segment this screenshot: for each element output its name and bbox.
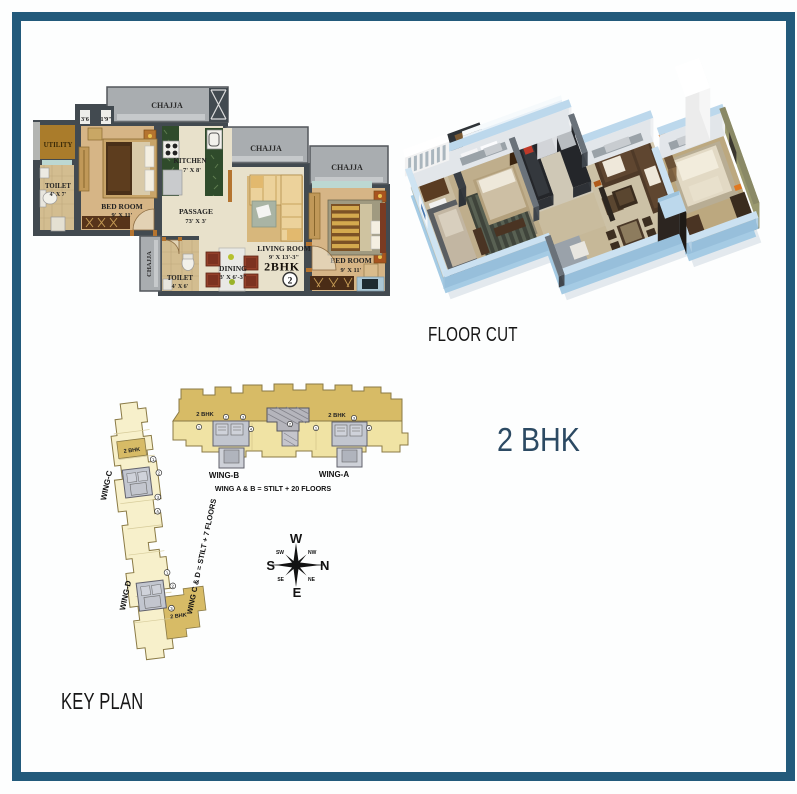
svg-text:4' X 7': 4' X 7' — [50, 192, 67, 198]
svg-text:CHAJJA: CHAJJA — [146, 251, 153, 277]
svg-text:E: E — [293, 585, 302, 600]
svg-text:BED ROOM: BED ROOM — [101, 202, 142, 211]
svg-text:WING-B: WING-B — [209, 471, 239, 480]
svg-text:TOILET: TOILET — [167, 275, 193, 282]
svg-text:LIVING ROOM: LIVING ROOM — [257, 244, 311, 253]
svg-text:73' X 3': 73' X 3' — [185, 218, 207, 225]
svg-text:SW: SW — [276, 550, 284, 556]
svg-text:FLOOR CUT: FLOOR CUT — [428, 323, 518, 346]
svg-text:DINING: DINING — [219, 264, 247, 273]
svg-text:2: 2 — [288, 277, 293, 287]
svg-text:WING-A: WING-A — [319, 470, 349, 479]
svg-text:CHAJJA: CHAJJA — [151, 101, 183, 110]
svg-text:4' X 6': 4' X 6' — [172, 284, 189, 290]
svg-text:1'9": 1'9" — [101, 117, 112, 123]
svg-text:N: N — [320, 558, 329, 573]
svg-text:KEY PLAN: KEY PLAN — [61, 689, 143, 714]
svg-text:WING A & B = STILT + 20 FLOORS: WING A & B = STILT + 20 FLOORS — [215, 484, 332, 493]
svg-text:S: S — [266, 558, 275, 573]
svg-text:7' X 8': 7' X 8' — [183, 167, 201, 174]
svg-text:UTILITY: UTILITY — [44, 142, 73, 149]
svg-text:2 BHK: 2 BHK — [328, 413, 346, 419]
svg-text:PASSAGE: PASSAGE — [179, 207, 213, 216]
svg-text:9' X 11': 9' X 11' — [341, 267, 362, 274]
svg-text:3' X 6'-3": 3' X 6'-3" — [219, 274, 246, 281]
svg-text:2 BHK: 2 BHK — [196, 412, 214, 418]
svg-text:CHAJJA: CHAJJA — [331, 163, 363, 172]
svg-text:CHAJJA: CHAJJA — [250, 144, 282, 153]
svg-text:3'6: 3'6 — [81, 117, 89, 123]
svg-text:2 BHK: 2 BHK — [497, 421, 580, 458]
svg-text:NE: NE — [308, 577, 316, 583]
svg-text:2BHK: 2BHK — [264, 260, 300, 274]
svg-text:TOILET: TOILET — [45, 183, 71, 190]
svg-text:9' X 11': 9' X 11' — [112, 212, 133, 219]
svg-text:NW: NW — [308, 550, 317, 556]
svg-text:SE: SE — [277, 577, 284, 583]
svg-text:W: W — [290, 531, 303, 546]
svg-text:KITCHEN: KITCHEN — [173, 157, 206, 165]
